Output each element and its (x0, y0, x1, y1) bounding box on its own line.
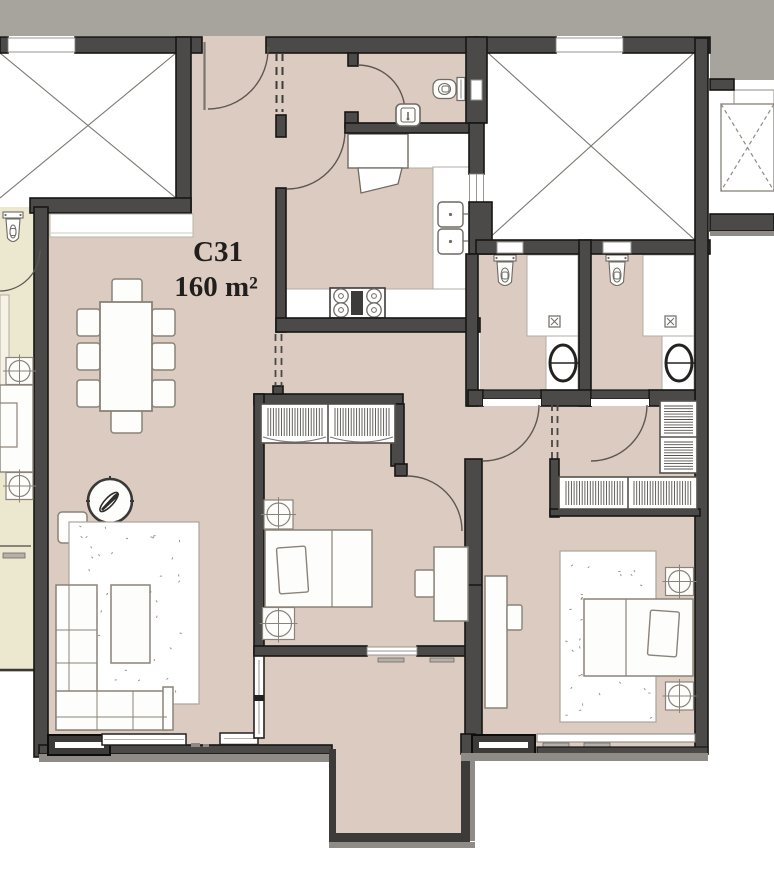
svg-text:160 m²: 160 m² (174, 271, 258, 303)
svg-text:C31: C31 (193, 236, 243, 268)
